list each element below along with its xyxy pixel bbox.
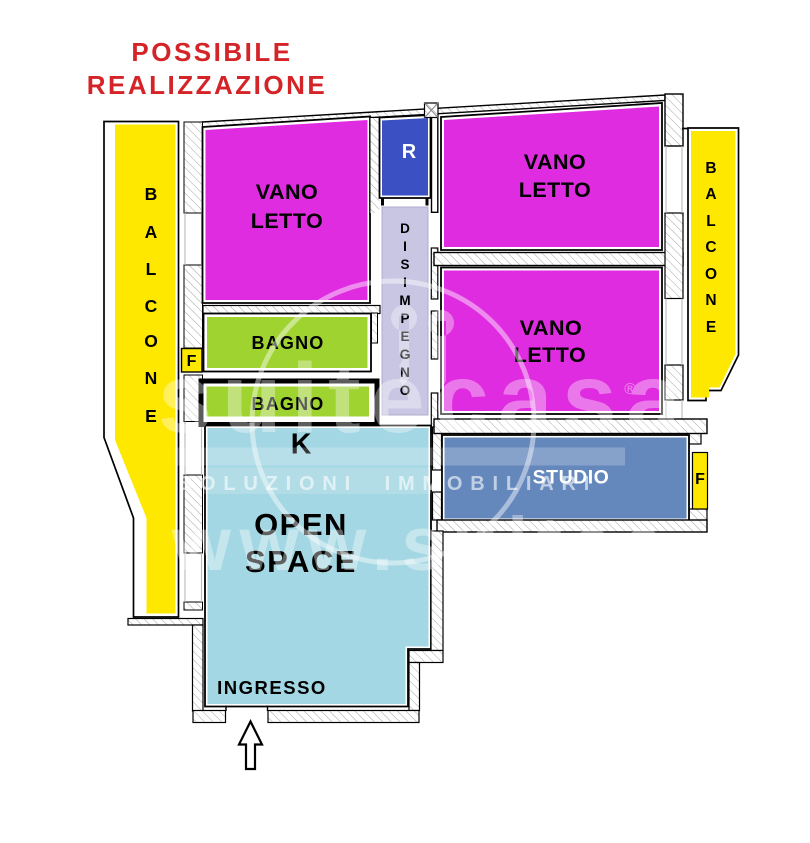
svg-text:LETTO: LETTO [519, 178, 592, 202]
svg-text:B: B [145, 184, 158, 204]
svg-text:R: R [402, 141, 417, 163]
svg-text:SOLUZIONI IMMOBILIARI: SOLUZIONI IMMOBILIARI [179, 473, 597, 495]
svg-text:E: E [145, 406, 157, 426]
svg-text:L: L [706, 213, 715, 230]
svg-text:A: A [145, 222, 158, 242]
svg-text:VANO: VANO [256, 180, 319, 204]
svg-text:VANO: VANO [520, 316, 583, 340]
svg-text:VANO: VANO [524, 150, 587, 174]
svg-text:C: C [145, 296, 158, 316]
svg-text:C: C [705, 239, 716, 256]
svg-text:O: O [705, 266, 717, 283]
svg-text:E: E [706, 319, 716, 336]
svg-text:I: I [403, 239, 407, 254]
svg-text:O: O [144, 331, 158, 351]
svg-text:www.suitec: www.suitec [171, 502, 672, 587]
svg-text:LETTO: LETTO [251, 209, 324, 233]
svg-text:L: L [146, 259, 157, 279]
svg-text:B: B [705, 160, 716, 177]
svg-text:REALIZZAZIONE: REALIZZAZIONE [87, 70, 328, 100]
svg-text:D: D [400, 221, 410, 236]
svg-text:INGRESSO: INGRESSO [217, 677, 327, 698]
svg-text:S: S [400, 257, 409, 272]
svg-text:POSSIBILE: POSSIBILE [131, 37, 292, 67]
svg-text:®: ® [624, 381, 636, 398]
svg-text:F: F [695, 471, 705, 488]
svg-text:A: A [705, 186, 716, 203]
svg-text:N: N [145, 368, 158, 388]
svg-text:suitecasa: suitecasa [158, 343, 690, 453]
svg-text:N: N [705, 292, 716, 309]
